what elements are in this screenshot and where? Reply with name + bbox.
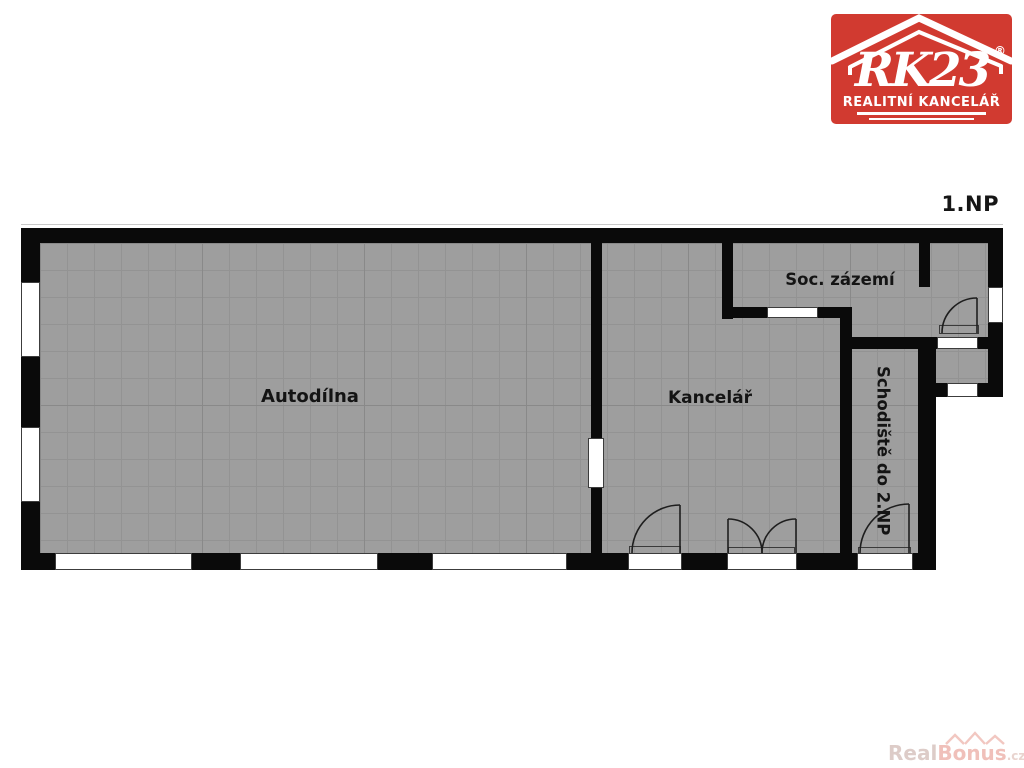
door-opening-schodiste <box>857 553 913 570</box>
room-label-autodilna: Autodílna <box>210 386 410 407</box>
watermark-text: RealBonus.cz <box>888 741 1020 765</box>
watermark-suffix: .cz <box>1007 749 1024 763</box>
opening-bottom-2 <box>240 553 378 570</box>
window-right <box>988 287 1003 323</box>
wall-autodilna-kancelar <box>591 243 602 553</box>
door-opening-double <box>727 553 797 570</box>
room-label-kancelar: Kancelář <box>620 388 800 408</box>
plan-top-hairline <box>21 224 1003 225</box>
wall-left <box>21 228 40 570</box>
window-soc-bottom <box>767 307 818 318</box>
door-opening-entry <box>937 337 978 349</box>
opening-bottom-3 <box>432 553 567 570</box>
realbonus-watermark: RealBonus.cz <box>888 731 1020 765</box>
opening-interior-wall <box>588 438 604 488</box>
watermark-part1: Real <box>888 741 937 765</box>
window-left-1 <box>21 282 40 357</box>
floor-plan: Autodílna Kancelář Soc. zázemí Schodiště… <box>0 0 1024 768</box>
wall-right-lower <box>918 337 936 570</box>
room-label-schodiste: Schodiště do 2.NP <box>864 360 902 542</box>
wall-entry-stub-right <box>978 337 1003 349</box>
wall-soc-partition-stub <box>919 243 930 287</box>
watermark-part2: Bonus <box>937 741 1006 765</box>
door-opening-kancelar <box>628 553 682 570</box>
window-left-2 <box>21 427 40 502</box>
window-small-room <box>947 383 978 397</box>
opening-bottom-1 <box>55 553 192 570</box>
wall-top <box>21 228 1003 243</box>
wall-schodiste-top <box>848 337 937 349</box>
room-label-soc-zazemi: Soc. zázemí <box>760 270 920 289</box>
